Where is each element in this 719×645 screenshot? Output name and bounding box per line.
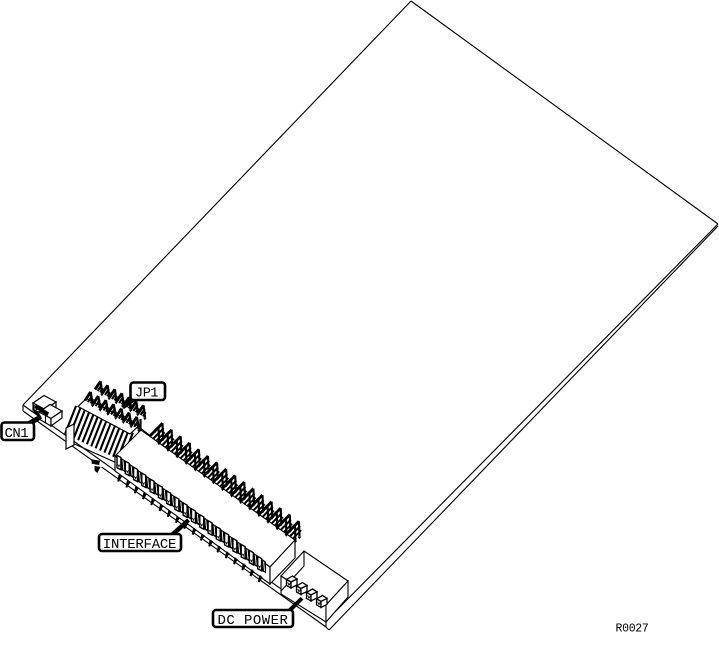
- svg-text:R0027: R0027: [616, 623, 649, 636]
- svg-text:JP1: JP1: [135, 387, 158, 402]
- svg-text:CN1: CN1: [5, 426, 29, 442]
- svg-text:INTERFACE: INTERFACE: [103, 537, 176, 553]
- svg-text:DC POWER: DC POWER: [218, 613, 289, 629]
